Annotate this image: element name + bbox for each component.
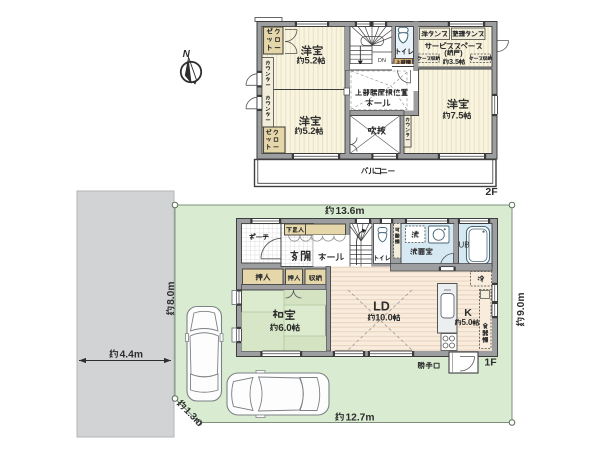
svg-text:UB: UB (458, 241, 469, 250)
svg-text:2: 2 (310, 125, 315, 136)
svg-text:4.4m: 4.4m (120, 349, 143, 360)
svg-text:13.6m: 13.6m (335, 206, 364, 217)
svg-text:コ: コ (374, 166, 382, 176)
svg-text:N: N (183, 49, 191, 60)
svg-text:DN: DN (378, 58, 386, 64)
svg-text:0: 0 (286, 323, 292, 334)
svg-text:1F: 1F (484, 357, 497, 369)
svg-text:5: 5 (458, 110, 463, 121)
svg-text:8.0m: 8.0m (166, 282, 177, 305)
svg-text:LD: LD (373, 300, 390, 314)
svg-text:9.0m: 9.0m (516, 293, 527, 316)
svg-text:12.7m: 12.7m (345, 412, 374, 423)
svg-text:2: 2 (312, 55, 317, 66)
svg-text:0: 0 (388, 313, 393, 323)
svg-text:2F: 2F (485, 186, 498, 198)
svg-text:0: 0 (468, 318, 473, 327)
svg-text:5: 5 (455, 57, 459, 66)
